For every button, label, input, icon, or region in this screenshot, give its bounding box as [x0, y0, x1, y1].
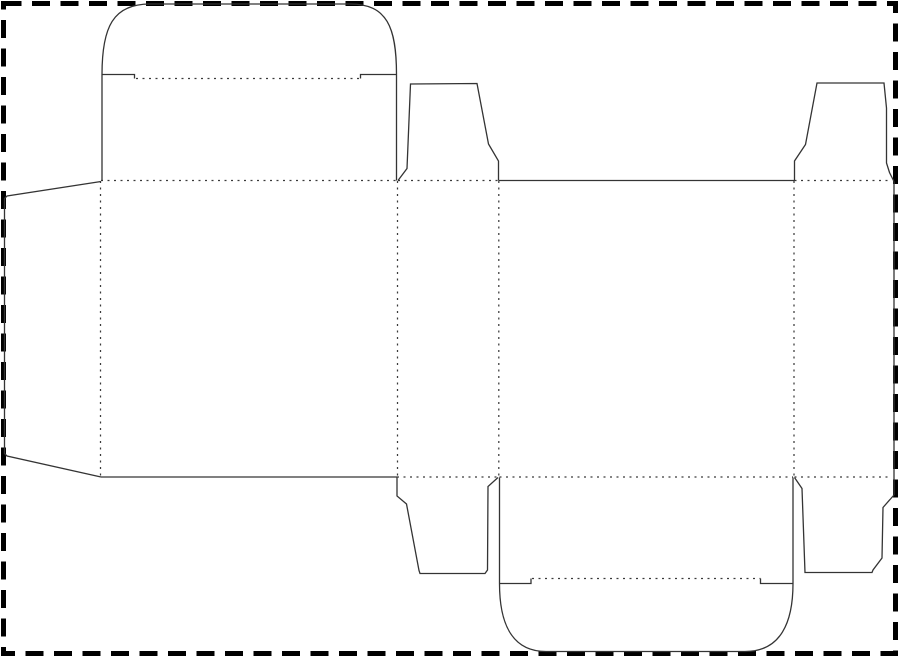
top-tuck-lid-outline — [102, 4, 397, 181]
top-dust-flap-right-outline — [795, 83, 895, 182]
top-lid-shoulder-right — [361, 75, 397, 79]
dieline-sheet — [0, 0, 900, 659]
glue-flap-outline — [5, 182, 102, 478]
bottom-lid-shoulder-right — [761, 579, 794, 584]
bottom-dust-flap-right-outline — [795, 478, 895, 573]
bottom-tuck-lid-outline — [500, 478, 794, 652]
dieline-diagram — [0, 0, 900, 659]
top-lid-shoulder-left — [102, 75, 135, 79]
bottom-lid-shoulder-left — [500, 579, 532, 584]
top-dust-flap-left-outline — [398, 84, 499, 181]
bottom-dust-flap-left-outline — [397, 478, 498, 574]
fold-lines — [101, 79, 892, 579]
cut-lines — [5, 4, 895, 652]
crop-border — [4, 4, 896, 654]
